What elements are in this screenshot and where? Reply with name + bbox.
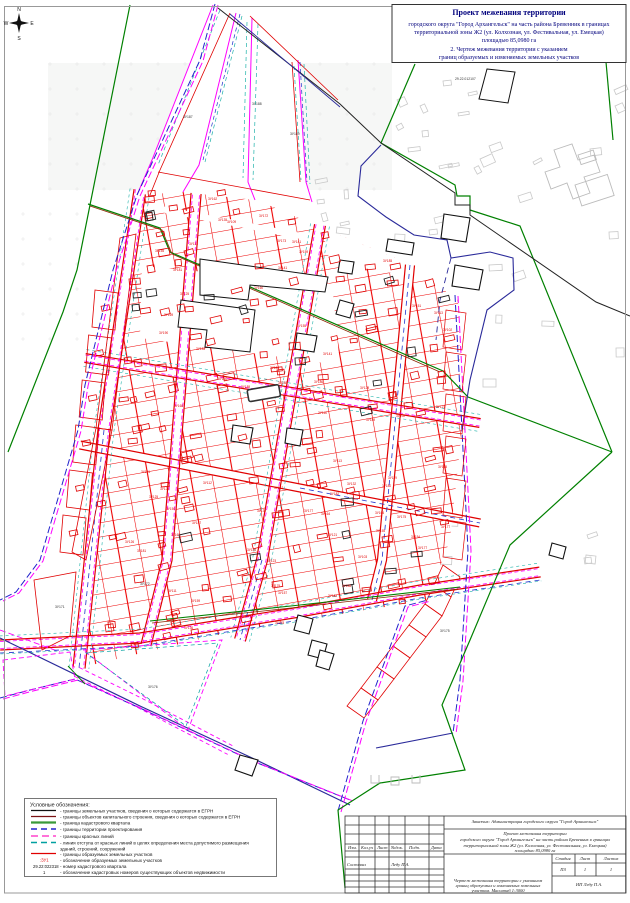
svg-text:3У190: 3У190 — [159, 331, 168, 335]
svg-text:3У188: 3У188 — [252, 102, 262, 106]
svg-text:Заказчик: Администрация городс: Заказчик: Администрация городского округ… — [472, 819, 599, 824]
svg-text:№док.: №док. — [390, 845, 403, 850]
svg-text:W: W — [4, 21, 9, 27]
svg-text:3У141: 3У141 — [323, 352, 332, 356]
svg-text:3У151: 3У151 — [141, 470, 150, 474]
svg-text:3У150: 3У150 — [166, 507, 175, 511]
svg-text:3У150: 3У150 — [218, 377, 227, 381]
svg-text:1: 1 — [584, 867, 586, 872]
svg-text:- обозначение кадастровых номе: - обозначение кадастровых номеров сущест… — [60, 870, 225, 875]
svg-text:3У109: 3У109 — [227, 220, 236, 224]
svg-text:3У112: 3У112 — [203, 481, 212, 485]
svg-text:3У165: 3У165 — [438, 465, 447, 469]
svg-text:3У151: 3У151 — [412, 304, 421, 308]
svg-text:3У162: 3У162 — [208, 197, 217, 201]
svg-text:ИП Леду П.А.: ИП Леду П.А. — [575, 882, 602, 887]
svg-text:3У175: 3У175 — [397, 515, 406, 519]
svg-text:3У102: 3У102 — [396, 414, 405, 418]
svg-text:городского округа "Город Архан: городского округа "Город Архангельск" на… — [460, 837, 610, 842]
svg-text:1: 1 — [610, 867, 612, 872]
svg-text:Листов: Листов — [603, 856, 619, 861]
svg-text:3У171: 3У171 — [55, 605, 65, 609]
svg-text:- граница кадастрового квартал: - граница кадастрового квартала — [60, 821, 131, 826]
svg-text:3У168: 3У168 — [174, 404, 183, 408]
svg-text:3У180: 3У180 — [382, 484, 391, 488]
svg-text:3У135: 3У135 — [218, 218, 227, 222]
svg-text:3У147: 3У147 — [192, 521, 201, 525]
svg-text:площадью 85,0980 га: площадью 85,0980 га — [515, 848, 556, 854]
svg-text:Подп.: Подп. — [408, 845, 420, 850]
svg-text::ЗУ1: :ЗУ1 — [40, 858, 49, 863]
svg-text:городского округа "Город Архан: городского округа "Город Архангельск" на… — [408, 21, 609, 28]
svg-text:3У186: 3У186 — [342, 584, 351, 588]
svg-text:E: E — [30, 21, 34, 27]
svg-text:3У182: 3У182 — [330, 492, 339, 496]
svg-text:Лист: Лист — [579, 856, 591, 861]
svg-text:3У164: 3У164 — [375, 511, 384, 515]
svg-text:3У126: 3У126 — [125, 540, 134, 544]
svg-text:3У172: 3У172 — [140, 582, 150, 586]
svg-text:3У181: 3У181 — [173, 268, 182, 272]
svg-text:3У154: 3У154 — [411, 535, 420, 539]
svg-text:3У189: 3У189 — [241, 385, 250, 389]
svg-text:3У125: 3У125 — [180, 292, 189, 296]
svg-text:3У128: 3У128 — [160, 487, 169, 491]
svg-text:3У129: 3У129 — [360, 386, 369, 390]
svg-text:S: S — [17, 36, 21, 42]
svg-text:Кол.уч: Кол.уч — [360, 845, 373, 850]
svg-text:3У136: 3У136 — [184, 626, 193, 630]
svg-text:территориальной зоны Ж2 (ул. К: территориальной зоны Ж2 (ул. Колхозная, … — [414, 29, 604, 36]
svg-text:3У158: 3У158 — [278, 381, 287, 385]
svg-text:3У175: 3У175 — [440, 629, 450, 633]
svg-text:3У116: 3У116 — [318, 411, 327, 415]
svg-text:3У113: 3У113 — [189, 242, 198, 246]
svg-text:3У155: 3У155 — [297, 324, 306, 328]
svg-text:зданий, строений, сооружений: зданий, строений, сооружений — [60, 846, 126, 852]
svg-text:площадью 85,0980 га: площадью 85,0980 га — [482, 38, 537, 44]
svg-text:3У123: 3У123 — [267, 559, 276, 563]
svg-text:- границы территории проектиро: - границы территории проектирования — [60, 827, 143, 832]
svg-text:3У157: 3У157 — [278, 591, 287, 595]
svg-text:3У167: 3У167 — [171, 533, 180, 537]
svg-text:3У172: 3У172 — [259, 214, 268, 218]
svg-text:Леду П.А.: Леду П.А. — [390, 862, 410, 867]
svg-text:N: N — [17, 7, 21, 13]
svg-text:3У103: 3У103 — [358, 555, 367, 559]
svg-text:3У155: 3У155 — [376, 529, 385, 533]
svg-text:границ образуемых и изменяемых: границ образуемых и изменяемых земельных… — [439, 54, 579, 61]
svg-text:3У111: 3У111 — [168, 589, 177, 593]
svg-text:3У177: 3У177 — [304, 509, 313, 513]
svg-text:- линия отступа от красных лин: - линия отступа от красных линий в целях… — [60, 840, 249, 846]
svg-text:3У169: 3У169 — [164, 313, 173, 317]
svg-text:Проект межевания территории: Проект межевания территории — [502, 831, 567, 836]
svg-text:3У178: 3У178 — [275, 621, 284, 625]
svg-text:29.22:022318: 29.22:022318 — [33, 864, 59, 869]
svg-text:- границы объектов капитальног: - границы объектов капитального строения… — [60, 815, 240, 820]
svg-text:29.22.012107: 29.22.012107 — [455, 77, 476, 81]
svg-text:3У121: 3У121 — [328, 533, 337, 537]
svg-text:ПЗ: ПЗ — [559, 867, 566, 872]
svg-text:3У181: 3У181 — [137, 549, 146, 553]
svg-text:3У180: 3У180 — [270, 366, 279, 370]
svg-text:- номер кадастрового квартала: - номер кадастрового квартала — [60, 864, 127, 869]
svg-text:3У132: 3У132 — [347, 482, 356, 486]
svg-text:участков. Масштаб 1:3000: участков. Масштаб 1:3000 — [470, 888, 525, 893]
svg-text:3У125: 3У125 — [149, 495, 158, 499]
svg-text:3У159: 3У159 — [191, 599, 200, 603]
svg-text:3У183: 3У183 — [328, 594, 337, 598]
svg-text:3У144: 3У144 — [247, 548, 256, 552]
svg-text:2. Чертеж межевания территории: 2. Чертеж межевания территории с указани… — [450, 47, 567, 53]
svg-text:Проект межевания территории: Проект межевания территории — [452, 8, 566, 17]
svg-text:Изм.: Изм. — [347, 845, 357, 850]
svg-text:3У186: 3У186 — [314, 380, 323, 384]
svg-text:3У141: 3У141 — [292, 240, 301, 244]
svg-text:3У185: 3У185 — [383, 259, 392, 263]
svg-text:Лист: Лист — [376, 845, 388, 850]
svg-text:3У176: 3У176 — [148, 685, 158, 689]
svg-text:3У132: 3У132 — [257, 509, 266, 513]
svg-text:- обозначение образуемых земел: - обозначение образуемых земельных участ… — [60, 858, 163, 863]
svg-text:3У164: 3У164 — [321, 512, 330, 516]
svg-text:3У159: 3У159 — [299, 250, 308, 254]
svg-text:3У119: 3У119 — [388, 476, 397, 480]
svg-text:3У147: 3У147 — [274, 486, 283, 490]
svg-text:- границы образуемых земельных: - границы образуемых земельных участков — [60, 852, 153, 857]
svg-text:Стадия: Стадия — [555, 856, 570, 861]
svg-text:3У121: 3У121 — [436, 405, 445, 409]
svg-text:3У141: 3У141 — [278, 266, 287, 270]
svg-text:3У189: 3У189 — [366, 418, 375, 422]
svg-text:- границы красных линий: - границы красных линий — [60, 833, 114, 839]
svg-text:Составил: Составил — [347, 862, 366, 867]
svg-text:3У173: 3У173 — [277, 239, 286, 243]
svg-text:Дата: Дата — [430, 845, 442, 850]
svg-text:3У160: 3У160 — [254, 286, 263, 290]
svg-text:3У133: 3У133 — [196, 347, 205, 351]
svg-text:3У179: 3У179 — [271, 584, 280, 588]
svg-text:3У189: 3У189 — [290, 132, 300, 136]
svg-text:3У177: 3У177 — [418, 546, 427, 550]
svg-text:3У187: 3У187 — [183, 115, 193, 119]
svg-text:3У155: 3У155 — [155, 249, 164, 253]
svg-text:3У113: 3У113 — [434, 311, 443, 315]
svg-text:- границы земельных участков,: - границы земельных участков, сведения о… — [60, 809, 213, 814]
svg-text:3У113: 3У113 — [333, 459, 342, 463]
